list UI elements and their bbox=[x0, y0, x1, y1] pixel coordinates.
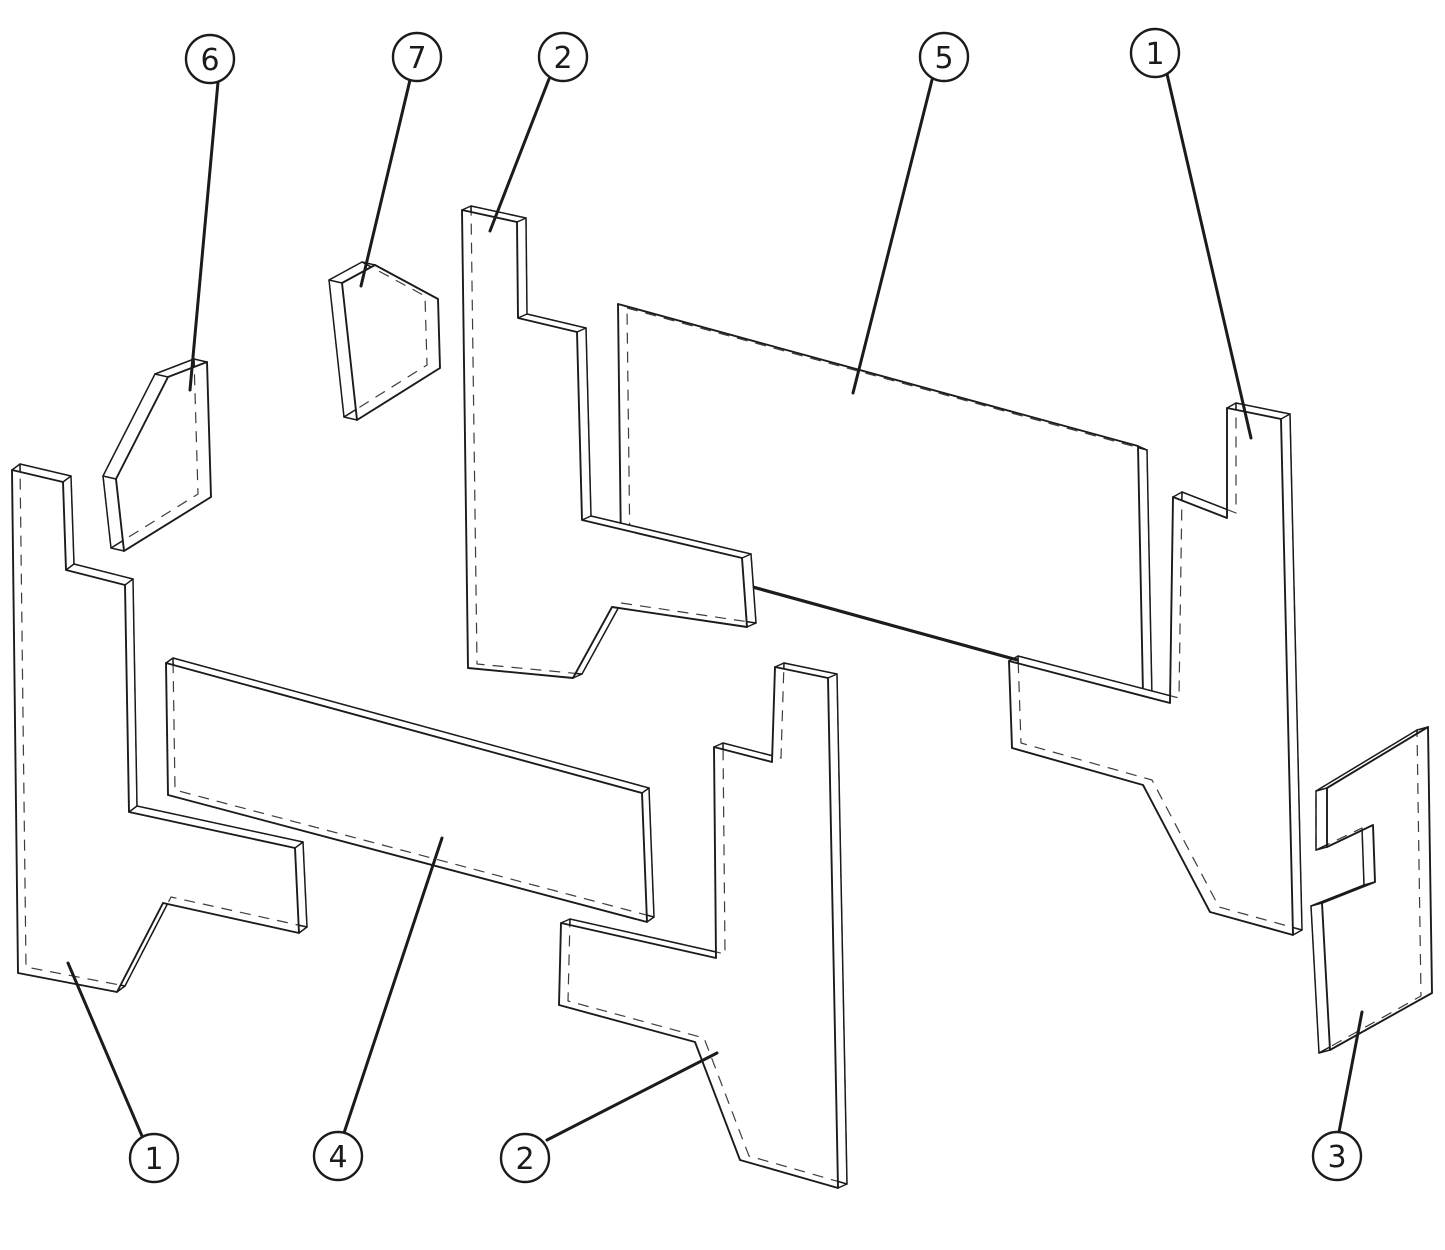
callout-item-2-7: 2 bbox=[501, 1053, 717, 1182]
callout-item-2-2: 2 bbox=[490, 33, 587, 231]
leader-line-side-panel-right bbox=[1167, 74, 1251, 438]
end-panel-notched-right-front-face bbox=[1322, 727, 1432, 1050]
side-panel-left-thickness-edge bbox=[12, 464, 20, 470]
rear-panel-lower-thickness-edge bbox=[166, 658, 173, 663]
callout-item-6-0: 6 bbox=[186, 35, 234, 390]
corner-brick-left-thickness-edge bbox=[111, 548, 124, 551]
corner-brick-center-thickness-edge bbox=[344, 417, 357, 420]
callout-number: 2 bbox=[515, 1142, 534, 1177]
callout-item-5-3: 5 bbox=[853, 33, 968, 393]
callout-item-4-6: 4 bbox=[314, 838, 442, 1180]
side-panel-right-thickness-edge bbox=[1173, 492, 1182, 497]
rear-panel-lower-thickness-edge bbox=[647, 917, 654, 922]
part-corner-brick-left bbox=[103, 359, 211, 551]
callout-number: 4 bbox=[328, 1140, 347, 1175]
side-panel-right-thickness-edge bbox=[1293, 930, 1302, 935]
side-panel-lower-middle-thickness-edge bbox=[838, 1184, 847, 1188]
leader-line-corner-brick-center bbox=[361, 80, 410, 286]
callout-item-1-4: 1 bbox=[1131, 29, 1251, 438]
leader-line-corner-brick-left bbox=[190, 82, 218, 390]
leader-line-side-panel-lower-middle bbox=[547, 1053, 717, 1140]
exploded-parts-diagram: 672511423 bbox=[0, 0, 1445, 1250]
part-side-panel-lower-middle bbox=[559, 663, 847, 1188]
part-end-panel-notched-right bbox=[1311, 727, 1432, 1053]
leader-line-side-panel-upper-middle bbox=[490, 79, 549, 231]
callout-number: 5 bbox=[934, 41, 953, 76]
part-rear-panel-large bbox=[618, 304, 1152, 698]
part-corner-brick-center bbox=[329, 262, 440, 420]
side-panel-left-thickness-edge bbox=[299, 927, 307, 933]
callout-number: 7 bbox=[407, 41, 426, 76]
callout-number: 1 bbox=[1145, 37, 1164, 72]
callout-item-1-5: 1 bbox=[68, 963, 178, 1182]
callout-number: 3 bbox=[1327, 1140, 1346, 1175]
callout-item-7-1: 7 bbox=[361, 33, 441, 286]
callout-number: 6 bbox=[200, 43, 219, 78]
rear-panel-large-front-face bbox=[618, 304, 1143, 694]
leader-line-rear-panel-large bbox=[853, 80, 932, 393]
diagram-svg: 672511423 bbox=[0, 0, 1445, 1250]
side-panel-right-thickness-edge bbox=[1227, 403, 1236, 408]
side-panel-upper-middle-thickness-edge bbox=[747, 623, 756, 627]
corner-brick-left-thickness-edge bbox=[194, 359, 207, 362]
leader-line-rear-panel-lower bbox=[344, 838, 442, 1133]
callout-number: 2 bbox=[553, 41, 572, 76]
callout-number: 1 bbox=[144, 1142, 163, 1177]
corner-brick-center-front-face bbox=[342, 265, 440, 420]
